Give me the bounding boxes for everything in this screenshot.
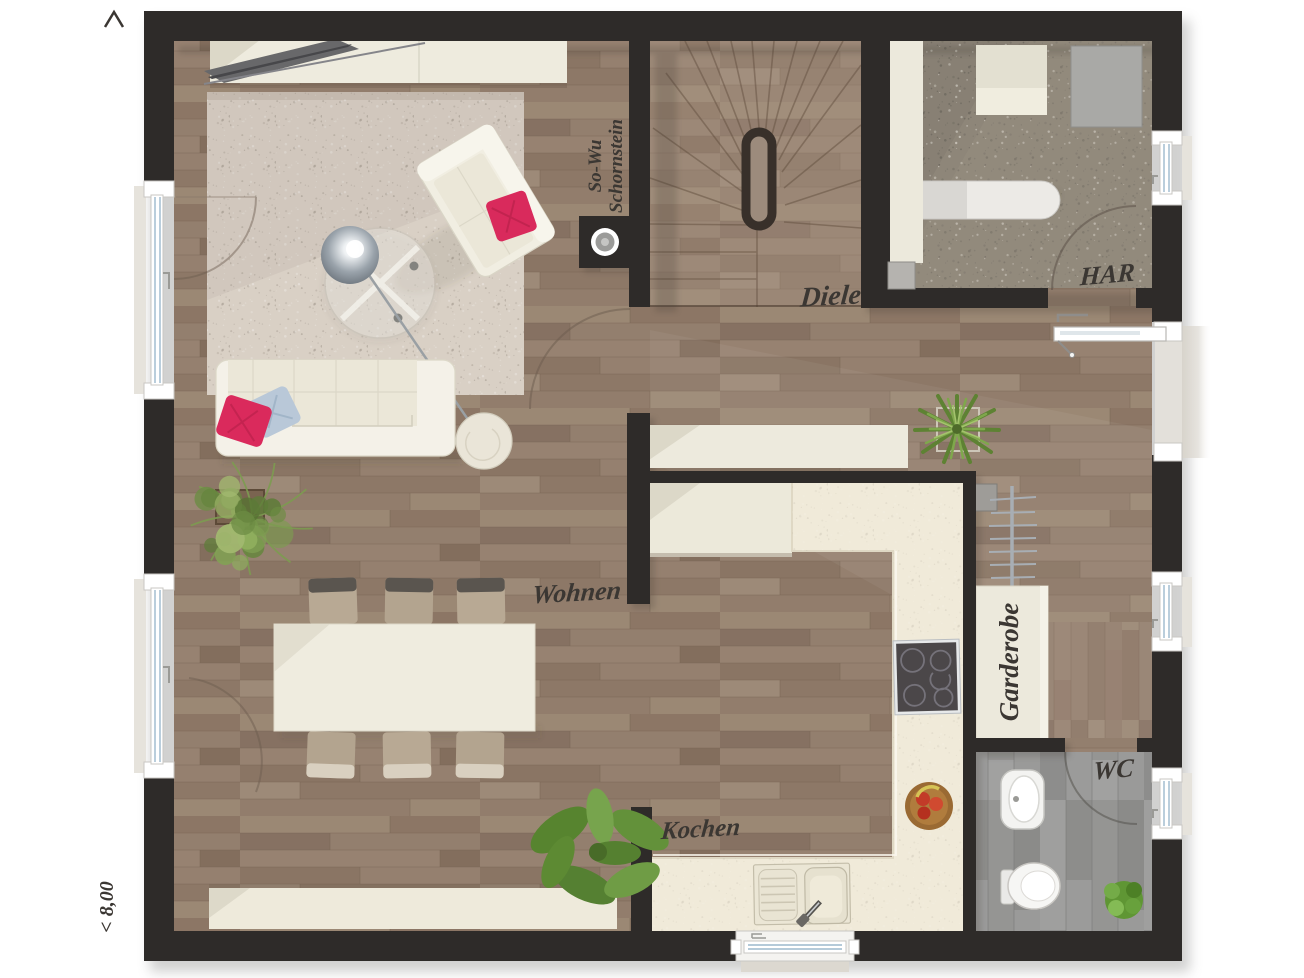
svg-text:WC: WC	[1093, 753, 1135, 786]
svg-text:Wohnen: Wohnen	[531, 576, 622, 610]
svg-text:So-Wu: So-Wu	[585, 140, 606, 193]
svg-text:Kochen: Kochen	[659, 814, 741, 845]
svg-text:Schornstein: Schornstein	[606, 119, 627, 213]
svg-text:Diele: Diele	[798, 279, 862, 313]
svg-text:Garderobe: Garderobe	[994, 603, 1024, 721]
svg-text:HAR: HAR	[1078, 258, 1135, 292]
svg-text:< 8,00: < 8,00	[96, 881, 118, 932]
